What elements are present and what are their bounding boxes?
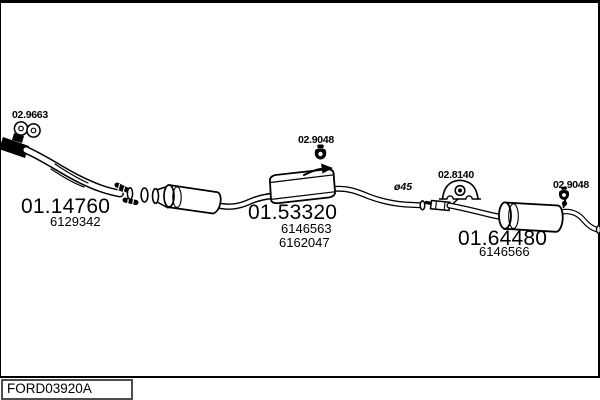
diagram-panel: 02.9663 01.14760 6129342 02.9048 01.5332… xyxy=(0,0,600,378)
rear-mount-ref-label: 02.8140 xyxy=(438,170,474,181)
tailpipe-open-end xyxy=(597,226,600,234)
diameter-label: ø45 xyxy=(394,182,412,193)
rear-hanger-ref-label: 02.9048 xyxy=(553,180,589,191)
rubber-mount-icon xyxy=(440,180,481,199)
centre-oe1-label: 6146563 xyxy=(281,222,332,235)
exhaust-diagram xyxy=(1,3,600,381)
centre-ref-label: 01.53320 xyxy=(248,202,337,223)
front-pipe-drawing xyxy=(26,150,120,194)
rear-inlet-pipe-drawing xyxy=(450,206,507,218)
centre-silencer-box-drawing xyxy=(270,169,335,203)
catalog-code-box: FORD03920A xyxy=(1,379,133,400)
gasket-ref-label: 02.9663 xyxy=(12,110,48,121)
front-pipe-oe-label: 6129342 xyxy=(50,215,101,228)
pipe-open-end xyxy=(420,201,425,210)
front-silencer-drawing xyxy=(153,185,221,214)
centre-oe2-label: 6162047 xyxy=(279,236,330,249)
catalog-code: FORD03920A xyxy=(7,381,92,396)
tailpipe-drawing xyxy=(561,211,598,229)
rubber-hanger-icon xyxy=(315,145,327,160)
centre-hanger-ref-label: 02.9048 xyxy=(298,135,334,146)
front-flange xyxy=(1,133,29,158)
rear-oe-label: 6146566 xyxy=(479,245,530,258)
